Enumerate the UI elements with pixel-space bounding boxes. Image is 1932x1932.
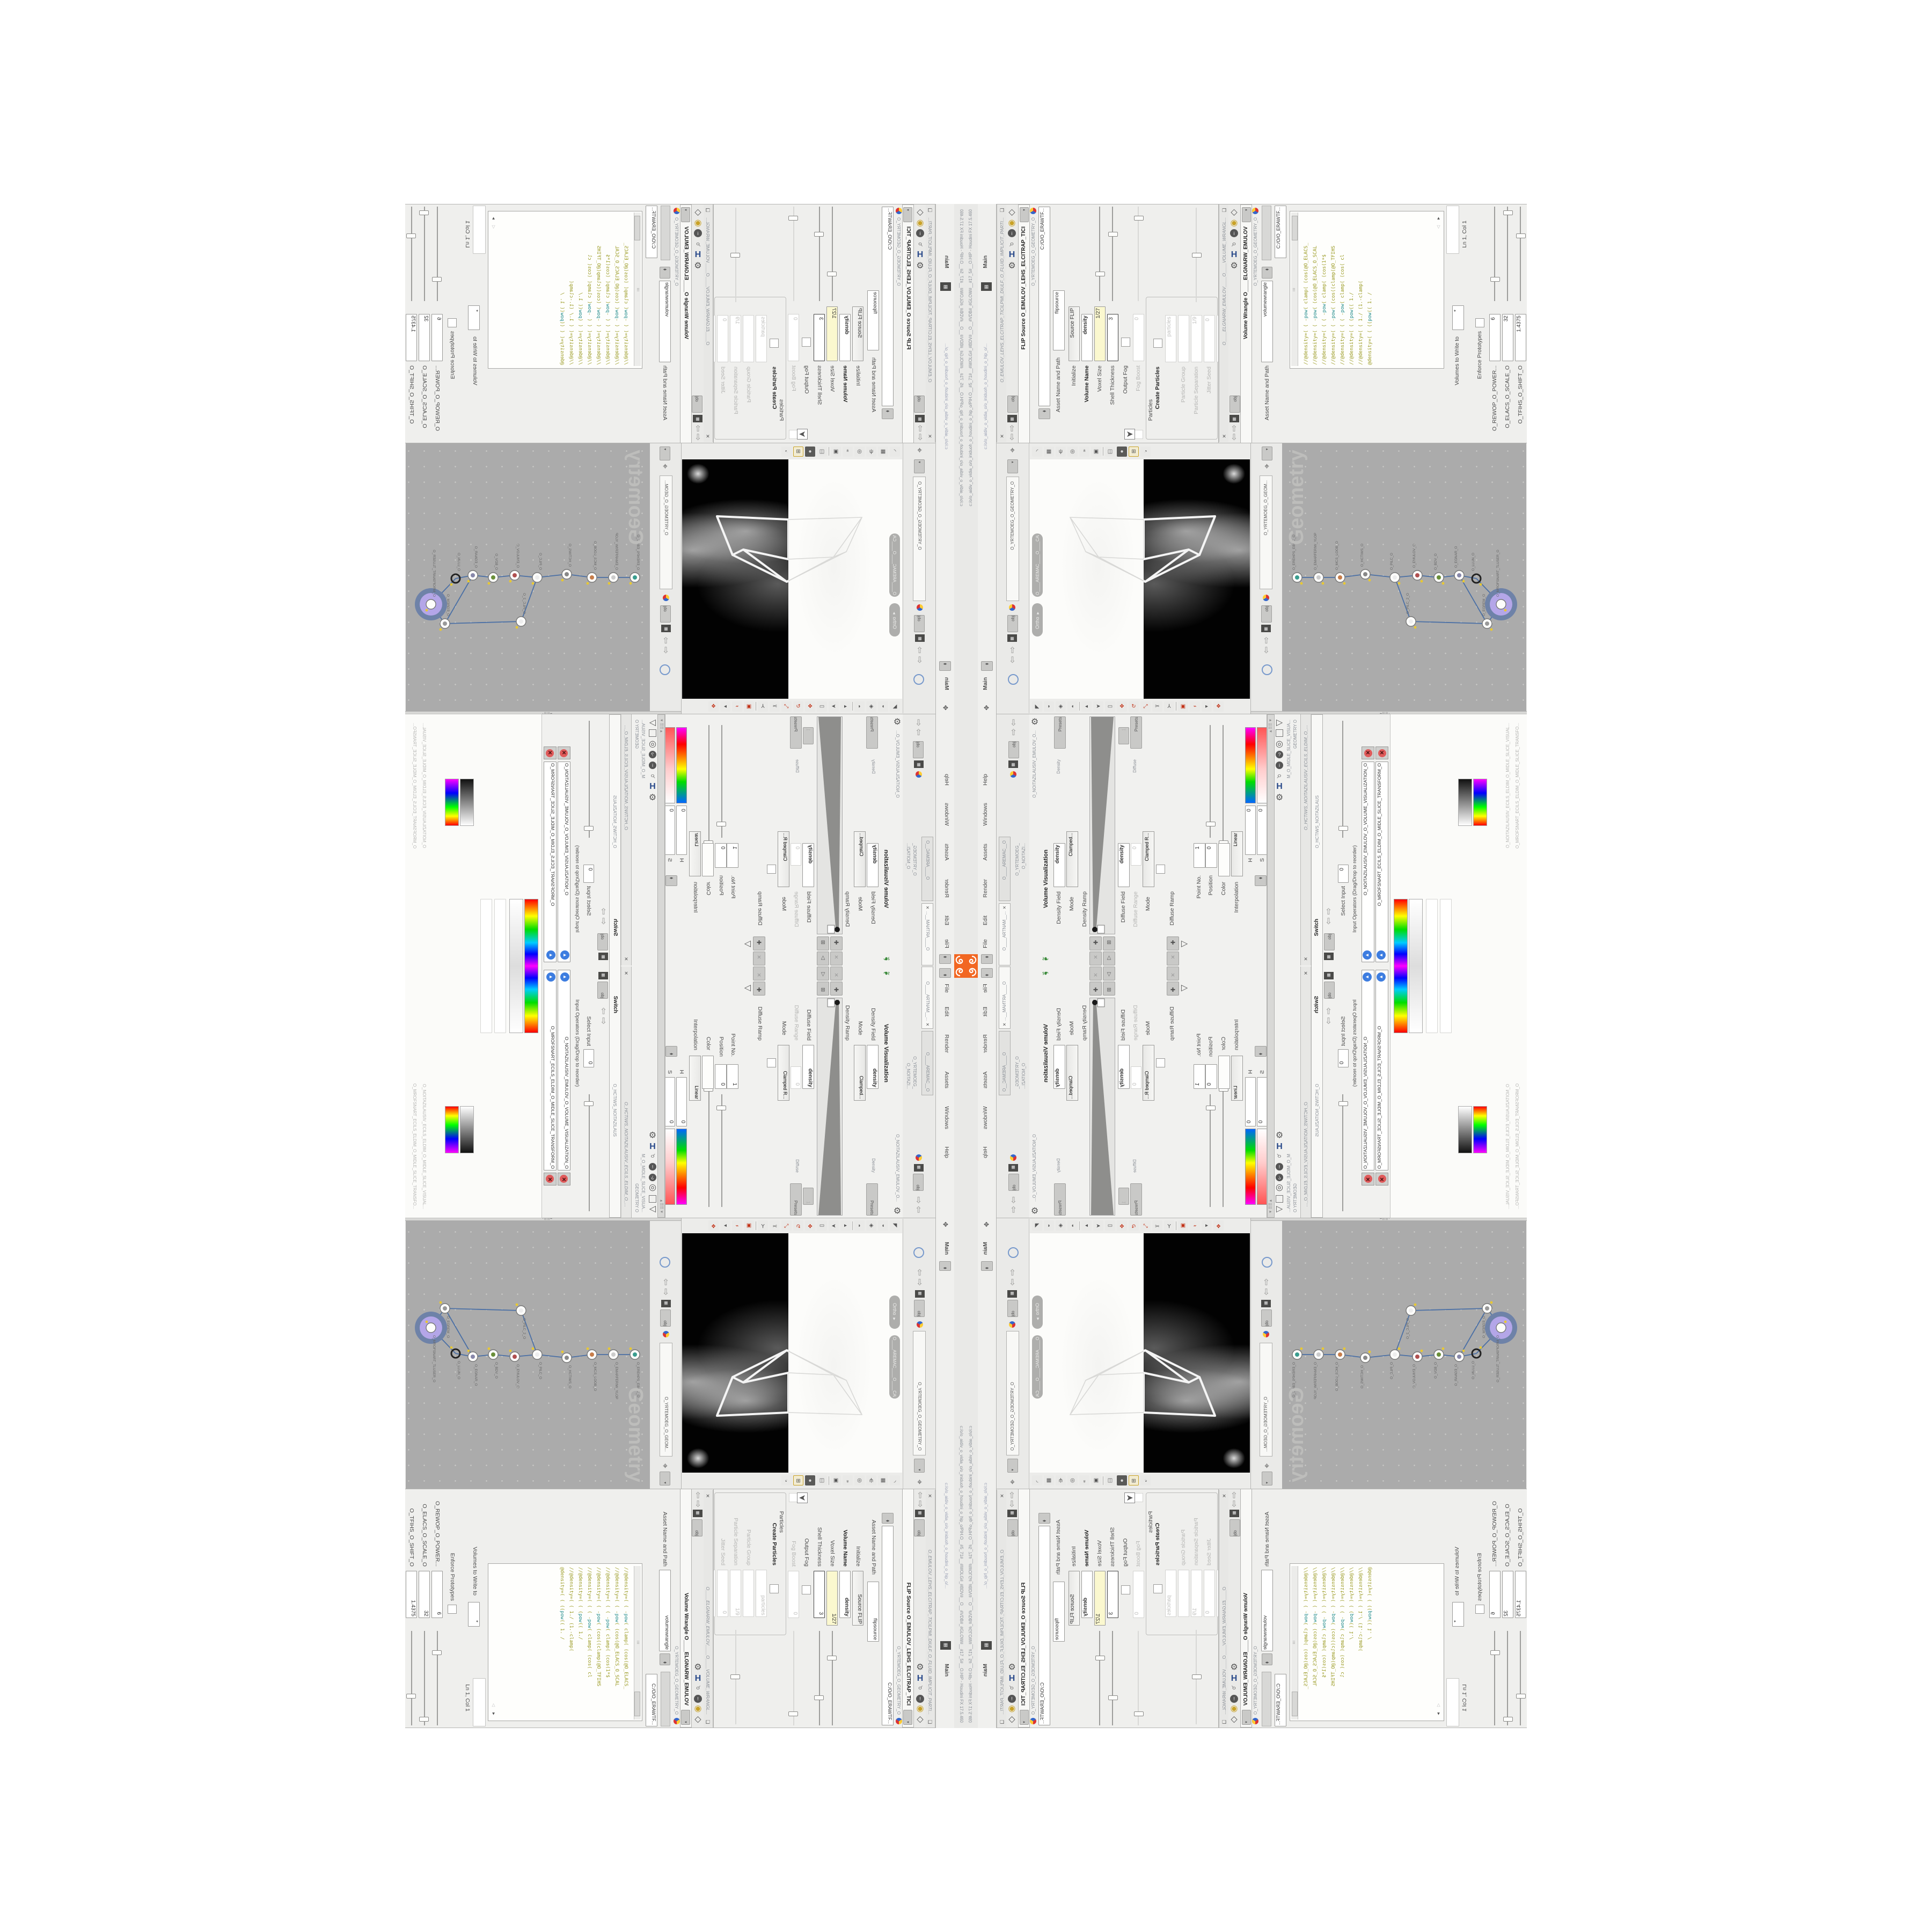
diffuse-range-input[interactable]: 0 xyxy=(791,843,801,866)
gear-icon[interactable]: ⚙ xyxy=(1030,1206,1039,1214)
param-field[interactable] xyxy=(1178,1570,1189,1617)
nav-down-icon[interactable]: ⇩ xyxy=(1008,1491,1016,1499)
nav-down-icon[interactable]: ⇩ xyxy=(914,1205,923,1213)
enforce-checkbox[interactable] xyxy=(448,1605,457,1614)
scroll-left-chip[interactable]: ◂▸ xyxy=(939,661,951,671)
magnify-icon[interactable]: ⌕ xyxy=(649,1152,656,1160)
ramp-field-1[interactable] xyxy=(1426,966,1438,1033)
viewport-render-area[interactable]: O____AREMAC____O____CAMERA____O Ortho ▾ xyxy=(682,1233,902,1473)
draw-arrow-icon[interactable]: ➤ xyxy=(1093,1221,1103,1231)
info-circle-icon[interactable]: i xyxy=(649,1163,656,1170)
viewport-tab[interactable]: O_YRTEMOEG_O_GEOMETRY_O xyxy=(917,1382,922,1451)
snap-tool-icon[interactable]: ⌁ xyxy=(1190,1221,1200,1231)
obj-context-chip[interactable]: obj xyxy=(1007,1300,1018,1317)
camera-tab[interactable]: O____AREMAC__O xyxy=(1002,1052,1007,1092)
network-node[interactable]: O_MROFSNART_TLUSER_O xyxy=(1496,1321,1506,1382)
tab-scroll-chip[interactable]: ▸ xyxy=(914,459,925,473)
obj-context-chip[interactable]: obj xyxy=(914,1519,925,1536)
tab-scroll-chip[interactable]: ▸ xyxy=(1020,207,1029,222)
pane-close-icon[interactable]: ✕ xyxy=(927,433,933,440)
param-field[interactable]: 6 xyxy=(431,1571,443,1618)
pin-icon[interactable]: ⌖ xyxy=(1263,463,1271,471)
menu-render[interactable]: Render xyxy=(943,1035,950,1053)
select-input-slider[interactable] xyxy=(589,1094,590,1211)
shade-book-icon[interactable]: ◖ xyxy=(1067,701,1078,712)
shade-diamond-icon[interactable]: ◈ xyxy=(866,701,876,712)
obj-context-chip[interactable]: obj xyxy=(1008,1174,1019,1191)
position-slider[interactable] xyxy=(1210,1094,1211,1207)
point-no-input[interactable]: 1 xyxy=(727,843,738,868)
interpolation-dropdown[interactable]: Linear xyxy=(1231,1056,1243,1101)
wrangle-pane-tab[interactable]: Volume Wrangle O____ELGNARW_EMULOV xyxy=(1243,1593,1249,1706)
flip-pane-tab[interactable]: FLIP Source O_EMULOV_LEHS_ELCITRAP_TICI xyxy=(905,1583,911,1706)
ramp-field-2[interactable] xyxy=(1440,966,1452,1033)
lamp-icon[interactable]: ◉ xyxy=(1008,1706,1016,1714)
position-input[interactable]: 0 xyxy=(1205,1064,1217,1089)
select-arrow-icon[interactable]: ◣ xyxy=(890,1221,900,1231)
volviz-crumb2[interactable]: O_NOITAZI... xyxy=(906,843,911,869)
param-slider[interactable] xyxy=(411,207,412,301)
play-icon[interactable]: ▷ xyxy=(1276,1206,1283,1213)
gear-icon[interactable]: ⚙ xyxy=(1276,1131,1283,1138)
switch-item-1[interactable]: O_NOITAZILAUSIV_EMULOV_O_VOLUME_VISUALIZ… xyxy=(1362,970,1374,1170)
pane-float-icon[interactable]: ◇ xyxy=(1008,208,1016,216)
dark-toggle-icon[interactable]: ● xyxy=(1117,447,1127,457)
scrollbar[interactable] xyxy=(1262,206,1271,260)
gear-icon[interactable]: ⚙ xyxy=(916,1663,924,1671)
pane-close-icon[interactable]: ✕ xyxy=(705,433,711,440)
writeto-field[interactable]: * xyxy=(468,1602,480,1627)
network-node[interactable]: O_EGNAR_O xyxy=(1454,546,1465,583)
rotate-tool-icon[interactable]: ↻ xyxy=(1129,1221,1139,1231)
wrangle-breadcrumb[interactable]: O_YRTEMOEG_O_GEOMETRY_O xyxy=(674,217,679,286)
presets-button-density[interactable]: Presets xyxy=(1054,716,1066,749)
flip-path-spinner[interactable]: ◂▸ xyxy=(1038,1513,1050,1524)
code-scroll-up[interactable]: ▲ xyxy=(490,1710,497,1717)
network-canvas[interactable]: Geometry O_EREHPS_EBUC_OO_EMARFERIW_YLOP… xyxy=(1282,1214,1526,1489)
camera-lock-icon[interactable]: ◫ xyxy=(1105,447,1115,457)
nav-up-icon[interactable]: ⇧ xyxy=(1008,646,1016,654)
param-field[interactable]: 0 xyxy=(788,1571,799,1618)
shade-acorn-icon[interactable]: ◗ xyxy=(1044,701,1054,712)
rotate-tool-icon[interactable]: ↻ xyxy=(793,1221,803,1231)
obj-context-chip[interactable]: obj xyxy=(913,741,924,758)
gear-icon[interactable]: ⚙ xyxy=(1230,261,1238,269)
wrangle-asset-name-field[interactable]: volumewrangle xyxy=(659,281,671,362)
move-tool-icon[interactable]: ✥ xyxy=(805,701,815,712)
target-icon[interactable]: ◎ xyxy=(649,1184,656,1192)
param-field[interactable]: 0 xyxy=(717,1570,728,1617)
param-field[interactable]: 1/27 xyxy=(1094,1571,1106,1626)
hue-gradient-bar[interactable] xyxy=(1245,727,1256,803)
snap-tool-icon[interactable]: ⌁ xyxy=(1190,701,1200,712)
radial-menu-icon[interactable] xyxy=(1262,1257,1272,1268)
tab-scroll-chip[interactable]: ▸ xyxy=(1020,1710,1029,1725)
point-no-input[interactable]: 1 xyxy=(1194,1064,1205,1089)
display-sphere-icon[interactable] xyxy=(1030,208,1036,214)
switch-item-2[interactable]: O_MROFSNART_ECILS_ELDIM_O_MIDLE_SLICE_TR… xyxy=(1375,970,1388,1170)
target-icon[interactable]: ◎ xyxy=(1276,1184,1283,1192)
density-mode-dropdown[interactable]: Clamped... xyxy=(854,1045,866,1101)
network-node[interactable]: O_LLUN_O xyxy=(450,1346,460,1379)
switch-item-1[interactable]: O_NOITAZILAUSIV_EMULOV_O_VOLUME_VISUALIZ… xyxy=(558,970,570,1170)
network-canvas[interactable]: Geometry O_EREHPS_EBUC_OO_EMARFERIW_YLOP… xyxy=(1282,443,1526,718)
switch-item-2[interactable]: O_MROFSNART_ECILS_ELDIM_O_MIDLE_SLICE_TR… xyxy=(1375,762,1388,962)
asset-spinner[interactable]: ◂▸ xyxy=(1262,267,1272,279)
lamp-icon[interactable]: ◉ xyxy=(916,1706,924,1714)
radial-menu-icon[interactable] xyxy=(660,1257,670,1268)
obj-context-chip[interactable]: obj xyxy=(1007,396,1018,413)
volviz-crumb1[interactable]: O_YRTEMOEG_ xyxy=(1015,843,1020,876)
param-field[interactable]: 1.4375 xyxy=(1515,1571,1526,1618)
param-slider[interactable] xyxy=(1196,208,1197,302)
gear-icon[interactable]: ⚙ xyxy=(1008,261,1016,269)
tab-scroll-chip[interactable]: ▸ xyxy=(660,1472,670,1485)
param-field[interactable]: particles xyxy=(756,315,767,362)
flip-asset-name-field[interactable]: flipsource xyxy=(867,290,879,350)
gear-icon[interactable]: ⚙ xyxy=(916,261,924,269)
select-input-field[interactable]: 0 xyxy=(1338,865,1349,883)
display-sphere-icon[interactable] xyxy=(1010,771,1016,778)
position-input[interactable]: 0 xyxy=(1205,843,1217,868)
pin-icon[interactable]: ⌖ xyxy=(916,447,924,455)
param-field[interactable]: 0 xyxy=(1204,315,1215,362)
menu-assets[interactable]: Assets xyxy=(943,844,950,861)
position-input[interactable]: 0 xyxy=(715,843,727,868)
color-slider[interactable] xyxy=(708,725,709,854)
clip-box-icon[interactable]: ▣ xyxy=(831,447,841,457)
param-field[interactable]: 3 xyxy=(814,314,825,361)
wrangle-path-field[interactable]: C:/O/O_ERAWTF... xyxy=(1275,1674,1286,1726)
param-field[interactable]: 1/9 xyxy=(1191,315,1202,362)
display-sphere-icon[interactable] xyxy=(896,208,902,214)
obj-context-chip[interactable]: obj xyxy=(692,396,702,413)
enforce-checkbox[interactable] xyxy=(448,318,457,327)
flip-path-field[interactable]: C:/O/O_ERAWTF... xyxy=(1038,1526,1050,1725)
nav-down-icon[interactable]: ⇩ xyxy=(916,656,924,664)
delete-item-1-button[interactable]: ✕ xyxy=(558,1173,570,1185)
diffuse-ramp-gradient[interactable] xyxy=(524,899,538,966)
wrangle-pane-tab[interactable]: Volume Wrangle O____ELGNARW_EMULOV xyxy=(1243,226,1249,339)
interpolation-dropdown[interactable]: Linear xyxy=(1231,831,1243,876)
presets-button-density[interactable]: Presets xyxy=(866,1183,878,1216)
param-field[interactable]: Source FLIP xyxy=(852,1571,863,1626)
nav-down-icon[interactable]: ⇩ xyxy=(599,1007,608,1015)
nav-down-icon[interactable]: ⇩ xyxy=(1008,433,1016,441)
reorder-item-1-icon[interactable]: ◂ xyxy=(1363,950,1372,960)
point-no-input[interactable]: 1 xyxy=(1194,843,1205,868)
scale-tool-icon[interactable]: ⤢ xyxy=(1140,1221,1151,1231)
shade-acorn-icon[interactable]: ◗ xyxy=(878,1221,888,1231)
display-sphere-icon[interactable] xyxy=(674,1718,680,1724)
stop-icon[interactable] xyxy=(649,1195,656,1203)
magnet-snap-icon[interactable]: ▣ xyxy=(1178,701,1188,712)
wrangle-pane-tab[interactable]: Volume Wrangle O____ELGNARW_EMULOV xyxy=(683,226,689,339)
display-sphere-icon[interactable] xyxy=(896,1718,902,1724)
code-scroll-up[interactable]: ▲ xyxy=(1435,1710,1442,1717)
network-node[interactable]: O_BDV_O xyxy=(488,1348,498,1379)
shade-diamond-icon[interactable]: ◈ xyxy=(866,1221,876,1231)
abc-display-icon[interactable]: ᵃ xyxy=(1079,1476,1089,1486)
wire-tree-icon[interactable]: ψ xyxy=(866,447,876,457)
diffuse-range-input[interactable]: 0 xyxy=(1131,843,1141,866)
sat-gradient-bar[interactable] xyxy=(664,1129,675,1205)
nav-up-icon[interactable]: ⇧ xyxy=(1324,1016,1333,1024)
param-field[interactable]: 3 xyxy=(814,1571,825,1618)
gear-icon[interactable]: ⚙ xyxy=(1008,1663,1016,1671)
density-ramp-gradient[interactable] xyxy=(509,899,523,966)
nav-down-icon[interactable]: ⇩ xyxy=(662,1278,670,1286)
gear-icon[interactable]: ⚙ xyxy=(893,1206,902,1214)
network-node[interactable]: O_MROFSNART_TLUSER_O xyxy=(426,550,436,611)
network-node[interactable]: O_HCTIWS_O xyxy=(561,544,572,581)
writeto-field[interactable]: * xyxy=(468,305,480,330)
param-field[interactable]: density xyxy=(839,1571,851,1618)
tab-scroll-chip[interactable]: ▸ xyxy=(914,1459,925,1473)
param-checkbox[interactable] xyxy=(770,1584,779,1593)
network-node[interactable]: O_PILC_O xyxy=(532,1348,542,1379)
view-cycle-icon[interactable]: ◔ xyxy=(1140,1476,1151,1486)
play-arrow-icon[interactable]: ▸ xyxy=(1202,1221,1212,1231)
param-slider[interactable] xyxy=(1196,1630,1197,1724)
pane-float-icon[interactable]: ◇ xyxy=(694,208,702,216)
diffuse-ramp-del-button[interactable]: ✕ xyxy=(753,952,765,965)
window-maximize-icon[interactable]: ❐ xyxy=(704,207,712,214)
param-checkbox-2[interactable] xyxy=(1134,1493,1143,1502)
lamp-icon[interactable]: ◉ xyxy=(1230,1706,1238,1714)
scroll-right-chip[interactable]: ◂▸ xyxy=(981,968,993,978)
shade-book-icon[interactable]: ◖ xyxy=(854,1221,865,1231)
hue-gradient-bar[interactable] xyxy=(1245,1129,1256,1205)
obj-context-chip[interactable]: obj xyxy=(1008,741,1019,758)
menu-help[interactable]: Help xyxy=(943,1146,950,1158)
nav-down-icon[interactable]: ⇩ xyxy=(694,433,702,441)
density-ramp-widget[interactable] xyxy=(817,998,843,1216)
param-slider[interactable] xyxy=(832,207,833,301)
param-field[interactable]: 32 xyxy=(419,1571,430,1618)
scrollbar[interactable] xyxy=(661,206,670,260)
camera-lock-icon[interactable]: ◫ xyxy=(817,1476,827,1486)
ramp-add-point-button[interactable]: ✚ xyxy=(1089,936,1102,950)
hue-gradient-bar[interactable] xyxy=(676,1129,687,1205)
shade-acorn-icon[interactable]: ◗ xyxy=(878,701,888,712)
network-node[interactable]: O_PILC_O xyxy=(1390,553,1400,584)
stop-icon[interactable] xyxy=(1276,1195,1283,1203)
hue-value-field[interactable]: 0 xyxy=(676,1077,687,1126)
display-sphere-icon[interactable] xyxy=(1030,1718,1036,1724)
param-slider[interactable] xyxy=(437,1631,438,1725)
param-checkbox[interactable] xyxy=(802,338,811,347)
menu-file[interactable]: File xyxy=(943,939,950,948)
points-box-icon[interactable]: ▦ xyxy=(1044,447,1054,457)
radial-menu-icon[interactable] xyxy=(660,664,670,675)
menu-edit[interactable]: Edit xyxy=(943,1007,950,1016)
diffuse-mode-dropdown[interactable]: Clamped R... xyxy=(1143,1045,1154,1101)
display-sphere-icon[interactable] xyxy=(917,1321,923,1328)
flip-pane-tab[interactable]: FLIP Source O_EMULOV_LEHS_ELCITRAP_TICI xyxy=(1021,226,1027,349)
main-desktop-label[interactable]: Main xyxy=(982,677,989,690)
render-flip-icon[interactable]: ❖ xyxy=(708,701,719,712)
magnify-icon[interactable]: ⌕ xyxy=(1230,240,1238,248)
obj-context-chip[interactable]: obj xyxy=(597,982,608,999)
select-arrow-icon[interactable]: ◣ xyxy=(1032,701,1042,712)
ortho-pill[interactable]: Ortho ▾ xyxy=(1032,603,1043,636)
menu-render[interactable]: Render xyxy=(982,879,989,897)
obj-context-chip[interactable]: obj xyxy=(1230,396,1240,413)
obj-context-chip[interactable]: obj xyxy=(1261,605,1272,623)
viewport-tab[interactable]: O_YRTEMOEG_O_GEOMETRY_O xyxy=(1010,1382,1015,1451)
ramp-add-point-button[interactable]: ✚ xyxy=(830,936,843,950)
magnify-icon[interactable]: ⌕ xyxy=(916,1684,924,1692)
network-node[interactable]: O_MOS_LOOB_O xyxy=(1335,541,1345,584)
menu-help[interactable]: Help xyxy=(982,1146,989,1158)
diffuse-ramp-add-button[interactable]: ✚ xyxy=(1167,982,1179,996)
color-swatch[interactable] xyxy=(1218,1056,1230,1089)
tab-scroll-chip[interactable]: ▸ xyxy=(1007,459,1018,473)
volviz-spinner[interactable]: ◂▸ xyxy=(1255,1046,1267,1057)
nav-down-icon[interactable]: ⇩ xyxy=(1008,1268,1016,1276)
density-field-input[interactable]: density xyxy=(1053,1045,1065,1089)
rotate-tool-icon[interactable]: ↻ xyxy=(793,701,803,712)
diffuse-enable-checkbox[interactable] xyxy=(767,1058,776,1067)
pane-close-icon[interactable]: ✕ xyxy=(1302,970,1309,976)
menu-assets[interactable]: Assets xyxy=(982,844,989,861)
ramp-delete-point-button[interactable]: ✕ xyxy=(1089,967,1102,980)
select-input-slider[interactable] xyxy=(1342,1094,1343,1211)
select-input-field[interactable]: 0 xyxy=(1338,1049,1349,1067)
position-slider[interactable] xyxy=(721,725,722,838)
grid-layout-selected-icon[interactable]: ⊞ xyxy=(1129,1476,1139,1486)
tab-scroll-chip[interactable]: ▸ xyxy=(660,447,670,460)
play-arrow-icon[interactable]: ▸ xyxy=(720,701,730,712)
network-node[interactable]: O_MOS_LOOB_O xyxy=(587,541,597,584)
clip-box-icon[interactable]: ▣ xyxy=(1091,1476,1101,1486)
param-slider[interactable] xyxy=(1099,1631,1100,1725)
reorder-item-2-icon[interactable]: ◂ xyxy=(1377,972,1386,982)
param-slider[interactable] xyxy=(1507,207,1508,301)
scale-tool-icon[interactable]: ⤢ xyxy=(781,701,792,712)
param-slider[interactable] xyxy=(1138,1631,1139,1725)
flip-asset-name-field[interactable]: flipsource xyxy=(1053,1582,1065,1642)
param-slider[interactable] xyxy=(819,207,820,301)
camera-tab[interactable]: O____AREMAC__O xyxy=(925,1052,930,1092)
flip-asset-name-field[interactable]: flipsource xyxy=(1053,290,1065,350)
gear-icon[interactable]: ⚙ xyxy=(1030,718,1039,726)
ramp-delete-point-button[interactable]: ✕ xyxy=(1089,952,1102,965)
radial-menu-icon[interactable] xyxy=(913,1247,924,1258)
grid-layout-selected-icon[interactable]: ⊞ xyxy=(793,447,803,457)
param-field[interactable]: 1/27 xyxy=(826,1571,838,1626)
nav-down-icon[interactable]: ⇩ xyxy=(1230,433,1238,441)
param-field[interactable]: particles xyxy=(756,1570,767,1617)
code-hscroll-thumb[interactable] xyxy=(634,216,640,240)
points-box-icon[interactable]: ▦ xyxy=(1044,1476,1054,1486)
lamp-icon[interactable]: ◉ xyxy=(1008,218,1016,226)
ramp-field-2[interactable] xyxy=(480,899,492,966)
ring-tool-icon[interactable]: ◎ xyxy=(854,1476,865,1486)
radial-menu-icon[interactable] xyxy=(913,674,924,685)
wrangle-asset-name-field[interactable]: volumewrangle xyxy=(1261,281,1273,362)
nav-down-icon[interactable]: ⇩ xyxy=(914,719,923,727)
pane-float-icon[interactable]: ◇ xyxy=(1008,1716,1016,1724)
density-ramp-widget[interactable] xyxy=(1089,998,1115,1216)
sat-value-field[interactable]: 0 xyxy=(1257,1077,1268,1126)
switch-tab[interactable]: Switch xyxy=(612,919,618,936)
menu-windows[interactable]: Windows xyxy=(943,1106,950,1129)
diffuse-ramp-del-button[interactable]: ✕ xyxy=(753,967,765,980)
param-field[interactable]: particles xyxy=(1165,315,1176,362)
pane-close-icon[interactable]: ✕ xyxy=(999,1492,1005,1499)
radial-menu-icon[interactable] xyxy=(1008,1247,1019,1258)
back-arrow-icon[interactable]: ◂ xyxy=(1081,1221,1092,1231)
help-circle-icon[interactable]: ? xyxy=(1276,1174,1283,1181)
camera-tab[interactable]: O____AREMAC__O xyxy=(925,840,930,880)
lamp-icon[interactable]: ◉ xyxy=(694,1706,702,1714)
viewport-tab[interactable]: O_YRTEMOEG_O_GEOMETRY_O xyxy=(1010,481,1015,550)
scroll-right-chip[interactable]: ◂▸ xyxy=(939,954,951,964)
network-node[interactable]: O_PILC_O xyxy=(532,553,542,584)
param-field[interactable]: Source FLIP xyxy=(1069,1571,1080,1626)
main-desktop-label-2[interactable]: Main xyxy=(943,1664,950,1677)
param-field[interactable]: 1/27 xyxy=(1094,306,1106,361)
pin-icon[interactable]: ⌖ xyxy=(1008,447,1016,455)
diffuse-ramp-gradient[interactable] xyxy=(1394,899,1408,966)
interpolation-dropdown[interactable]: Linear xyxy=(689,831,701,876)
target-icon[interactable]: ◎ xyxy=(1276,740,1283,748)
info-circle-icon[interactable]: i xyxy=(649,762,656,769)
density-ramp-widget[interactable] xyxy=(1089,716,1115,934)
nav-down-icon[interactable]: ⇩ xyxy=(916,433,924,441)
display-sphere-icon[interactable] xyxy=(1263,595,1269,601)
play-arrow-icon[interactable]: ▸ xyxy=(1202,701,1212,712)
select-input-field[interactable]: 0 xyxy=(583,1049,594,1067)
target-icon[interactable]: ◎ xyxy=(649,740,656,748)
ramp-field-1[interactable] xyxy=(494,966,506,1033)
flip-path-spinner[interactable]: ◂▸ xyxy=(882,408,894,419)
obj-context-chip[interactable]: obj xyxy=(1007,1519,1018,1536)
color-swatch[interactable] xyxy=(1218,843,1230,876)
axis-tree-icon[interactable]: ⅄ xyxy=(1164,1221,1174,1231)
display-sphere-icon[interactable] xyxy=(1010,1154,1016,1161)
lamp-icon[interactable]: ◉ xyxy=(1230,218,1238,226)
ortho-pill[interactable]: Ortho ▾ xyxy=(889,1296,900,1329)
param-slider[interactable] xyxy=(735,1630,736,1724)
code-scroll-down[interactable]: ▽ xyxy=(1435,1702,1442,1709)
presets-button-diffuse[interactable]: Presets xyxy=(1130,1183,1142,1216)
select-arrow-icon[interactable]: ◣ xyxy=(890,701,900,712)
density-ramp-gradient[interactable] xyxy=(1409,899,1423,966)
magnify-icon[interactable]: ⌕ xyxy=(1008,1684,1016,1692)
window-maximize-icon[interactable]: ❐ xyxy=(998,1718,1006,1725)
tab-close-icon[interactable]: ✕ xyxy=(925,1021,931,1027)
diffuse-ramp-gradient[interactable] xyxy=(524,966,538,1033)
pane-close-icon[interactable]: ✕ xyxy=(999,433,1005,440)
switch-item-2[interactable]: O_MROFSNART_ECILS_ELDIM_O_MIDLE_SLICE_TR… xyxy=(544,762,557,962)
flip-path-field[interactable]: C:/O/O_ERAWTF... xyxy=(882,207,894,406)
gear-icon[interactable]: ⚙ xyxy=(649,794,656,801)
param-field[interactable]: 1/27 xyxy=(826,306,838,361)
param-field[interactable]: 0 xyxy=(1133,1571,1144,1618)
dark-toggle-icon[interactable]: ● xyxy=(805,447,815,457)
c4-chip-icon[interactable]: ▭ xyxy=(817,1221,827,1231)
gear-icon[interactable]: ⚙ xyxy=(1276,794,1283,801)
clip-box-icon[interactable]: ▣ xyxy=(831,1476,841,1486)
scroll-right-chip[interactable]: ◂▸ xyxy=(939,968,951,978)
writeto-field[interactable]: * xyxy=(1452,305,1464,330)
volviz-crumb2[interactable]: O_NOITAZI... xyxy=(906,1063,911,1089)
main-nav-icon[interactable]: ✥ xyxy=(982,703,991,713)
network-node[interactable]: O_PILC_2_O xyxy=(516,1304,526,1339)
